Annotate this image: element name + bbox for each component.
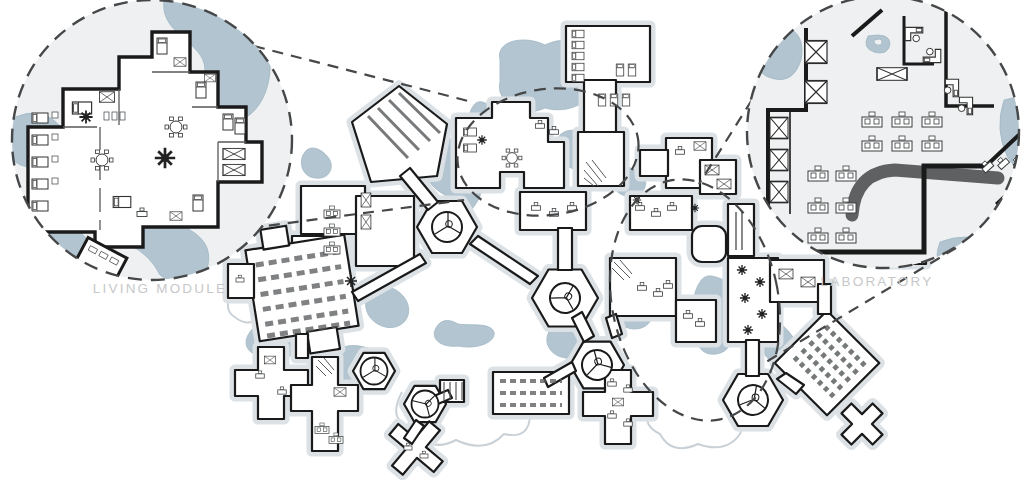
dome-icon — [432, 212, 462, 242]
laboratory-callout — [746, 0, 1024, 281]
living-module-callout — [7, 0, 294, 285]
laboratory-label: LABORATORY — [821, 274, 934, 289]
living-module-label: LIVING MODULE — [93, 281, 227, 296]
site-plan-canvas: LIVING MODULE LABORATORY — [0, 0, 1024, 489]
site-plan-figure: LIVING MODULE LABORATORY — [0, 0, 1024, 489]
